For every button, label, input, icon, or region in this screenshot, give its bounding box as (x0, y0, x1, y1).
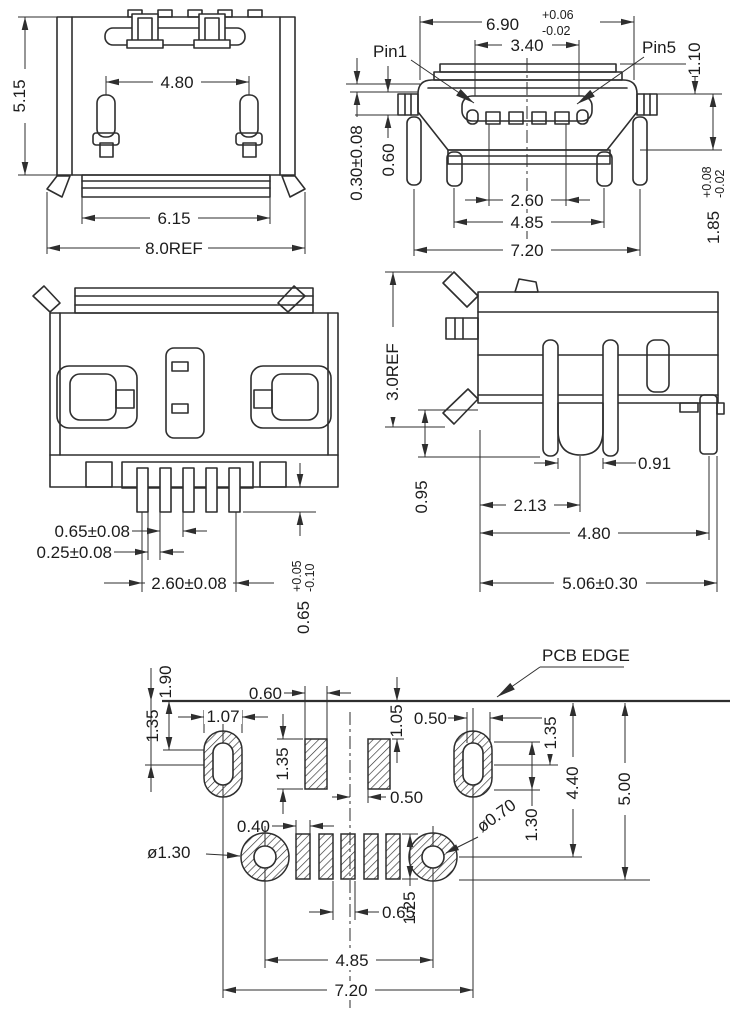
dim-side-slot-offset: 2.13 (513, 496, 546, 515)
dim-bottom-pin-pitch: 0.65±0.08 (54, 522, 130, 541)
dim-front-mount-height: 1.85 (704, 211, 723, 244)
label-pcb-edge: PCB EDGE (542, 646, 630, 665)
dim-pcb-pad-height: 1.35 (273, 747, 292, 780)
dim-front-mount-height-minus: -0.02 (713, 169, 727, 198)
front-view: Pin1 Pin5 6.90 +0.06 -0.02 3.40 1.10 0.3… (346, 5, 727, 260)
dim-pcb-small-pad-width: 0.40 (237, 817, 270, 836)
dim-pcb-left-hole-dia: ø1.30 (147, 843, 190, 862)
dim-front-inner-leg-span: 4.85 (510, 213, 543, 232)
dim-pcb-slot-to-hole: 1.30 (522, 808, 541, 841)
dim-pcb-hole-span: 4.85 (335, 951, 368, 970)
dim-pcb-pad-to-center: 0.50 (390, 788, 423, 807)
signal-pad-1 (296, 834, 310, 879)
signal-pad-3 (341, 834, 355, 879)
drawing-svg: 5.15 4.80 6.15 8.0REF (0, 0, 740, 1010)
dim-front-top-height: 1.10 (685, 42, 704, 75)
pcb-layout: PCB EDGE 1.90 1.35 1.07 0.60 1.35 (143, 646, 730, 1008)
dim-front-lead-thickness: 0.30±0.08 (347, 125, 366, 201)
dim-rear-height: 5.15 (10, 79, 29, 112)
dim-pcb-pad-width: 0.60 (249, 684, 282, 703)
dim-pcb-small-pad-height: 1.25 (400, 891, 419, 924)
side-view: 3.0REF 0.95 2.13 0.91 4.80 5.06±0.30 (383, 272, 724, 593)
dim-pcb-slot-pad-depth: 1.35 (541, 716, 560, 749)
signal-pad-4 (364, 834, 378, 879)
dim-front-standoff: 0.60 (379, 143, 398, 176)
dim-rear-overall-width: 8.0REF (145, 239, 203, 258)
dim-bottom-pin-row-span: 2.60±0.08 (151, 574, 227, 593)
dim-pcb-right-hole-dia: ø0.70 (473, 795, 519, 836)
dim-bottom-pin-protrusion: 0.65 (294, 601, 313, 634)
drawing-canvas: 5.15 4.80 6.15 8.0REF (0, 0, 740, 1010)
dim-pcb-edge-to-hole-center: 4.40 (563, 766, 582, 799)
signal-pad-5 (386, 834, 400, 879)
dim-pcb-slot-pad-width: 1.07 (206, 707, 239, 726)
dim-pcb-edge-to-pad-top: 1.05 (387, 704, 406, 737)
rect-pad-right (368, 739, 390, 789)
dim-pcb-slot-span: 7.20 (334, 981, 367, 1000)
dim-bottom-pin-gap: 0.25±0.08 (36, 543, 112, 562)
dim-front-contact-span: 2.60 (510, 191, 543, 210)
dim-bottom-pin-protrusion-minus: -0.10 (303, 563, 317, 592)
dim-side-overall-height: 3.0REF (383, 343, 402, 401)
dim-side-leg-gap: 0.91 (638, 454, 671, 473)
dim-side-depth: 4.80 (577, 524, 610, 543)
rect-pad-left (305, 739, 327, 789)
dim-front-mount-height-plus: +0.08 (700, 166, 714, 198)
dim-front-shell-width-minus: -0.02 (542, 24, 571, 38)
dim-pcb-edge-to-slot-center: 1.90 (156, 665, 175, 698)
dim-pcb-edge-to-slot-top: 1.35 (143, 709, 162, 742)
label-pin5: Pin5 (642, 38, 676, 57)
dim-side-overall-depth: 5.06±0.30 (562, 574, 638, 593)
dim-front-shell-width: 6.90 (486, 15, 519, 34)
dim-front-outer-leg-span: 7.20 (510, 241, 543, 260)
dim-side-leg-drop: 0.95 (412, 480, 431, 513)
signal-pad-2 (319, 834, 333, 879)
rear-view: 5.15 4.80 6.15 8.0REF (9, 10, 305, 258)
label-pin1: Pin1 (373, 42, 407, 61)
dim-pcb-slot-hole-width: 0.50 (414, 709, 447, 728)
bottom-view: 0.65±0.08 0.25±0.08 2.60±0.08 0.65 +0.05… (33, 286, 338, 634)
dim-rear-post-spacing: 4.80 (160, 73, 193, 92)
dim-rear-flange-width: 6.15 (157, 209, 190, 228)
dim-front-shell-width-plus: +0.06 (542, 8, 574, 22)
dim-front-tongue-width: 3.40 (510, 36, 543, 55)
dim-bottom-pin-protrusion-plus: +0.05 (290, 560, 304, 592)
dim-pcb-edge-to-outline: 5.00 (615, 772, 634, 805)
